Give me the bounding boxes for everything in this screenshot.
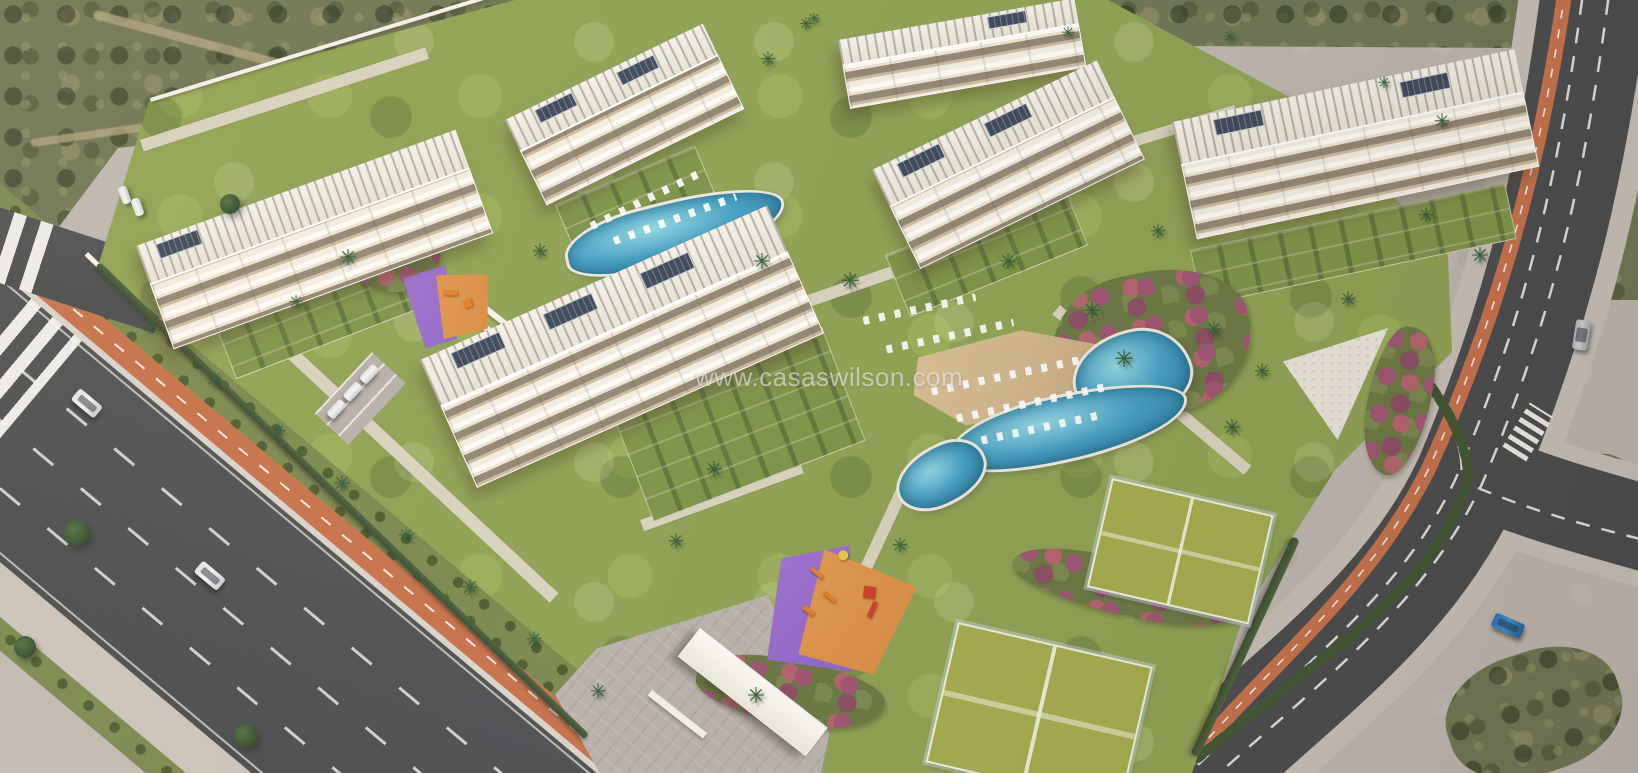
watermark: www.casaswilson.com (695, 362, 963, 393)
parked-car (342, 381, 363, 402)
palm-tree-icon: ✳ (892, 536, 909, 556)
palm-tree-icon: ✳ (1254, 362, 1271, 382)
palm-tree-icon: ✳ (999, 251, 1017, 273)
palm-tree-icon: ✳ (142, 318, 159, 338)
palm-tree-icon: ✳ (589, 682, 607, 703)
playground-main (767, 536, 921, 679)
round-tree (234, 724, 258, 748)
palm-tree-icon: ✳ (1223, 417, 1241, 439)
round-tree (64, 520, 90, 546)
palm-tree-icon: ✳ (205, 370, 223, 391)
parked-car (326, 398, 347, 419)
palm-tree-icon: ✳ (760, 50, 777, 70)
palm-tree-icon: ✳ (1434, 112, 1451, 132)
round-tree (14, 636, 36, 658)
palm-tree-icon: ✳ (840, 270, 860, 294)
palm-tree-icon: ✳ (753, 251, 771, 273)
palm-tree-icon: ✳ (339, 247, 357, 269)
palm-tree-icon: ✳ (270, 422, 287, 442)
palm-tree-icon: ✳ (1471, 245, 1489, 267)
round-tree (220, 194, 240, 214)
parked-car (359, 363, 380, 384)
palm-tree-icon: ✳ (1377, 76, 1390, 92)
palm-tree-icon: ✳ (1340, 290, 1357, 310)
palm-tree-icon: ✳ (333, 473, 351, 495)
palm-tree-icon: ✳ (461, 577, 479, 599)
palm-tree-icon: ✳ (1223, 30, 1236, 46)
palm-tree-icon: ✳ (288, 293, 303, 311)
palm-tree-icon: ✳ (668, 532, 685, 552)
palm-tree-icon: ✳ (747, 685, 765, 707)
car-windshield (1575, 328, 1587, 343)
aerial-render-scene: ✳ ✳ ✳ ✳ ✳ ✳ ✳ ✳ ✳ ✳ ✳ ✳ ✳ ✳ ✳ ✳ ✳ ✳ ✳ ✳ … (0, 0, 1638, 773)
play-tower (863, 586, 877, 600)
connector-road-asphalt (1470, 470, 1638, 535)
palm-tree-icon: ✳ (1418, 206, 1435, 226)
palm-tree-icon: ✳ (1061, 26, 1074, 42)
palm-tree-icon: ✳ (1150, 222, 1167, 242)
palm-tree-icon: ✳ (705, 459, 723, 481)
climbing-frame (443, 290, 457, 295)
palm-tree-icon: ✳ (1114, 348, 1134, 372)
palm-tree-icon: ✳ (807, 12, 820, 28)
palm-tree-icon: ✳ (1205, 319, 1223, 341)
palm-tree-icon: ✳ (532, 242, 549, 262)
palm-tree-icon: ✳ (1082, 300, 1102, 324)
palm-tree-icon: ✳ (526, 630, 543, 650)
palm-tree-icon: ✳ (398, 526, 415, 546)
